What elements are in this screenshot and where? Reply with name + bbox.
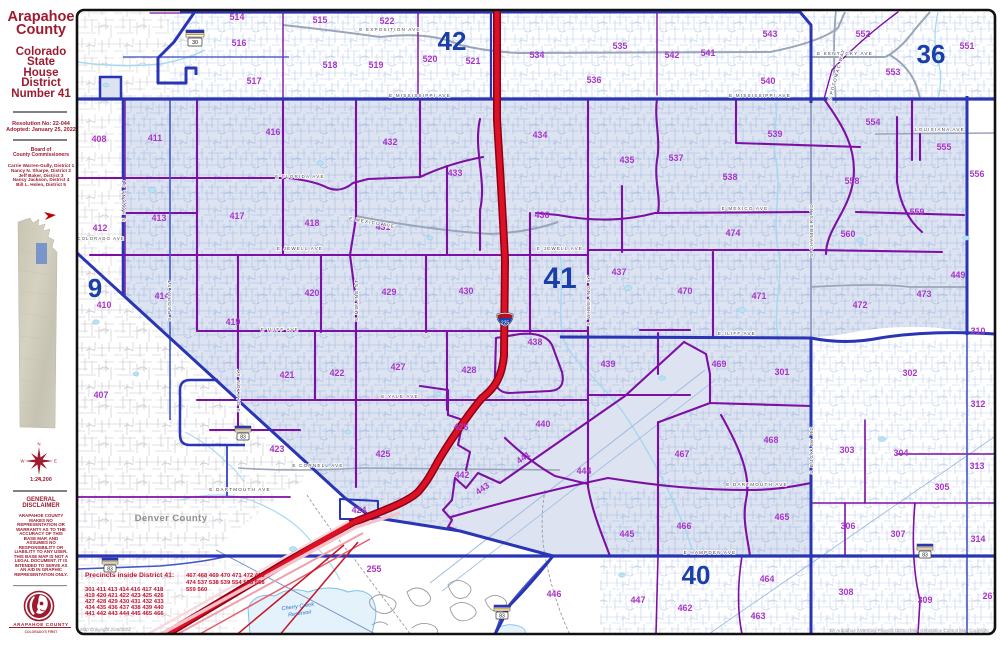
svg-text:Denver County: Denver County <box>135 513 208 524</box>
svg-text:S HAVANA ST: S HAVANA ST <box>121 179 126 222</box>
svg-text:439: 439 <box>601 359 616 369</box>
svg-text:467 468 469 470 471 472 473: 467 468 469 470 471 472 473 <box>186 573 265 579</box>
svg-text:E FLORIDA AVE: E FLORIDA AVE <box>275 174 324 179</box>
svg-text:305: 305 <box>935 482 950 492</box>
svg-text:540: 540 <box>761 76 776 86</box>
svg-text:556: 556 <box>970 169 985 179</box>
svg-text:E MISSISSIPPI AVE: E MISSISSIPPI AVE <box>389 93 451 98</box>
svg-text:E ILIFF AVE: E ILIFF AVE <box>718 331 756 336</box>
svg-text:551: 551 <box>960 41 975 51</box>
svg-text:558: 558 <box>845 176 860 186</box>
svg-text:433: 433 <box>448 168 463 178</box>
svg-text:30: 30 <box>192 40 198 46</box>
svg-text:9: 9 <box>88 273 102 303</box>
svg-text:407: 407 <box>94 390 109 400</box>
svg-text:E CORNELL AVE: E CORNELL AVE <box>292 463 343 468</box>
svg-text:472: 472 <box>853 300 868 310</box>
svg-text:42: 42 <box>438 26 467 56</box>
svg-text:468: 468 <box>764 435 779 445</box>
svg-text:554: 554 <box>866 117 881 127</box>
svg-text:474: 474 <box>726 228 741 238</box>
svg-text:255: 255 <box>367 564 382 574</box>
svg-text:312: 312 <box>971 399 986 409</box>
svg-text:Precincts inside District 41:: Precincts inside District 41: <box>85 572 174 579</box>
svg-text:537: 537 <box>669 153 684 163</box>
svg-text:303: 303 <box>840 445 855 455</box>
svg-text:539: 539 <box>768 129 783 139</box>
svg-text:36: 36 <box>917 39 946 69</box>
svg-text:520: 520 <box>423 54 438 64</box>
svg-text:444: 444 <box>577 466 592 476</box>
svg-text:419: 419 <box>226 317 241 327</box>
svg-text:83: 83 <box>922 552 928 558</box>
svg-text:LOUISIANA AVE: LOUISIANA AVE <box>915 127 965 132</box>
svg-text:535: 535 <box>613 41 628 51</box>
svg-text:411: 411 <box>148 133 162 143</box>
svg-text:E DARTMOUTH AVE: E DARTMOUTH AVE <box>726 482 787 487</box>
svg-text:464: 464 <box>760 574 775 584</box>
svg-text:560: 560 <box>841 229 856 239</box>
svg-text:553: 553 <box>886 67 901 77</box>
svg-text:E JEWELL AVE: E JEWELL AVE <box>277 246 323 251</box>
svg-text:429: 429 <box>382 287 397 297</box>
svg-text:S WHEELING ST: S WHEELING ST <box>586 274 591 326</box>
svg-text:301: 301 <box>775 367 790 377</box>
svg-text:422: 422 <box>330 368 345 378</box>
svg-text:313: 313 <box>970 461 985 471</box>
svg-text:441 442 443 444 445 465 466: 441 442 443 444 445 465 466 <box>85 611 164 617</box>
svg-text:538: 538 <box>723 172 738 182</box>
svg-text:418: 418 <box>305 218 320 228</box>
svg-text:447: 447 <box>631 595 646 605</box>
svg-text:By Arapahoe Assembly Projects: By Arapahoe Assembly Projects District M… <box>830 628 989 633</box>
svg-text:436: 436 <box>535 210 550 220</box>
svg-text:432: 432 <box>383 137 398 147</box>
svg-text:559: 559 <box>910 207 925 217</box>
svg-text:522: 522 <box>380 16 395 26</box>
svg-text:427: 427 <box>391 362 406 372</box>
svg-text:83: 83 <box>240 434 246 440</box>
svg-text:519: 519 <box>369 60 384 70</box>
svg-text:421: 421 <box>280 370 295 380</box>
svg-text:534: 534 <box>530 50 545 60</box>
svg-text:440: 440 <box>536 419 551 429</box>
svg-text:469: 469 <box>712 359 727 369</box>
svg-text:E HAMPDEN AVE: E HAMPDEN AVE <box>684 550 737 555</box>
svg-text:83: 83 <box>499 613 505 619</box>
svg-text:225: 225 <box>501 321 510 327</box>
svg-text:463: 463 <box>751 611 766 621</box>
svg-text:449: 449 <box>951 270 966 280</box>
svg-text:518: 518 <box>323 60 338 70</box>
svg-text:307: 307 <box>891 529 906 539</box>
svg-text:437: 437 <box>612 267 627 277</box>
svg-text:E COLORADO AVE: E COLORADO AVE <box>71 236 125 241</box>
svg-text:416: 416 <box>266 127 281 137</box>
svg-text:515: 515 <box>313 15 328 25</box>
svg-text:302: 302 <box>903 368 918 378</box>
svg-text:516: 516 <box>232 38 247 48</box>
svg-text:446: 446 <box>547 589 562 599</box>
svg-text:Map Copyright 2/28/2022: Map Copyright 2/28/2022 <box>80 627 131 632</box>
svg-text:423: 423 <box>270 444 285 454</box>
svg-text:542: 542 <box>665 50 680 60</box>
svg-text:435: 435 <box>620 155 635 165</box>
svg-text:314: 314 <box>971 534 986 544</box>
svg-text:412: 412 <box>93 223 108 233</box>
svg-text:417: 417 <box>230 211 245 221</box>
svg-text:309: 309 <box>918 595 933 605</box>
svg-text:E YALE AVE: E YALE AVE <box>381 394 419 399</box>
svg-text:428: 428 <box>462 365 477 375</box>
svg-text:559 560: 559 560 <box>186 587 208 593</box>
svg-text:E EXPOSITION AVE: E EXPOSITION AVE <box>359 27 421 32</box>
svg-text:462: 462 <box>678 603 693 613</box>
svg-text:420: 420 <box>305 288 320 298</box>
svg-text:430: 430 <box>459 286 474 296</box>
svg-text:474 537 538 539 554 555 558: 474 537 538 539 554 555 558 <box>186 580 265 586</box>
svg-text:S CHAMBERS RD: S CHAMBERS RD <box>809 203 814 257</box>
svg-text:466: 466 <box>677 521 692 531</box>
svg-text:41: 41 <box>543 262 576 295</box>
svg-text:304: 304 <box>894 448 909 458</box>
svg-text:442: 442 <box>455 470 470 480</box>
svg-text:473: 473 <box>917 289 932 299</box>
svg-text:470: 470 <box>678 286 693 296</box>
svg-text:425: 425 <box>376 449 391 459</box>
svg-text:541: 541 <box>701 48 716 58</box>
svg-text:E JEWELL AVE: E JEWELL AVE <box>537 246 583 251</box>
svg-text:310: 310 <box>971 326 986 336</box>
svg-text:552: 552 <box>856 29 871 39</box>
svg-text:517: 517 <box>247 76 262 86</box>
svg-text:308: 308 <box>839 587 854 597</box>
svg-text:514: 514 <box>230 12 245 22</box>
svg-text:521: 521 <box>466 56 481 66</box>
svg-text:40: 40 <box>682 560 711 590</box>
svg-text:434: 434 <box>533 130 548 140</box>
svg-text:438: 438 <box>528 337 543 347</box>
svg-text:S MOLINE ST: S MOLINE ST <box>354 279 359 321</box>
svg-text:536: 536 <box>587 75 602 85</box>
svg-text:E ILIFF AVE: E ILIFF AVE <box>261 327 299 332</box>
svg-text:471: 471 <box>752 291 767 301</box>
svg-text:E MISSISSIPPI AVE: E MISSISSIPPI AVE <box>729 93 791 98</box>
svg-text:S DAYTON ST: S DAYTON ST <box>236 368 241 411</box>
svg-text:306: 306 <box>841 521 856 531</box>
svg-text:426: 426 <box>454 422 469 432</box>
svg-text:E DARTMOUTH AVE: E DARTMOUTH AVE <box>209 487 270 492</box>
svg-text:445: 445 <box>620 529 635 539</box>
svg-text:424: 424 <box>352 505 367 515</box>
svg-text:465: 465 <box>775 512 790 522</box>
svg-text:E MEXICO AVE: E MEXICO AVE <box>722 206 769 211</box>
svg-text:543: 543 <box>763 29 778 39</box>
svg-text:413: 413 <box>152 213 167 223</box>
svg-text:467: 467 <box>675 449 690 459</box>
svg-text:408: 408 <box>92 134 107 144</box>
svg-text:S BUCKLEY RD: S BUCKLEY RD <box>809 426 814 474</box>
svg-text:S PEORIA ST: S PEORIA ST <box>167 279 172 321</box>
svg-text:555: 555 <box>937 142 952 152</box>
